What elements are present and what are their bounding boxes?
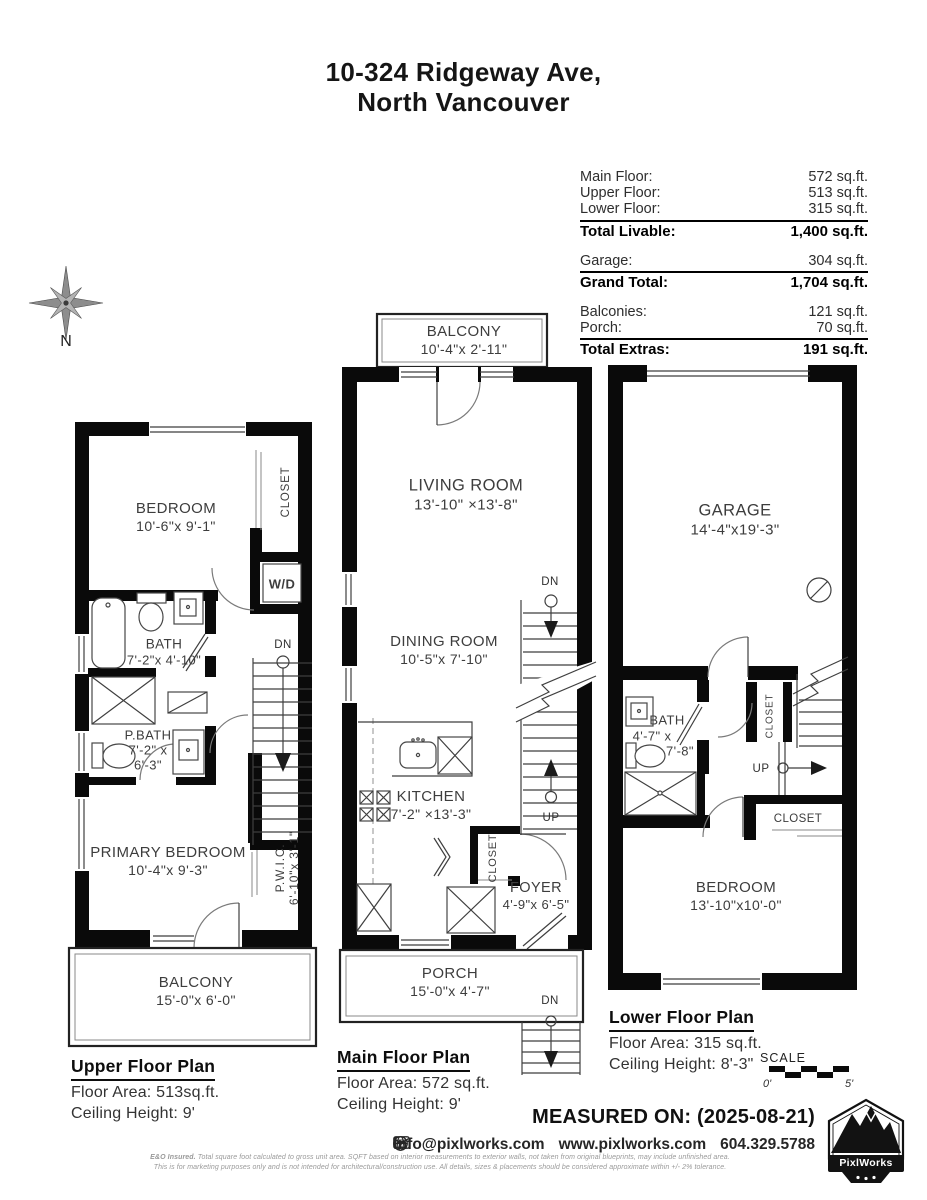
upper-plan-caption: Upper Floor Plan Floor Area: 513sq.ft. C… [71,1056,219,1123]
upper-plan-name: Upper Floor Plan [71,1056,215,1081]
email-text: info@pixlworks.com [393,1136,544,1154]
upper-balcony-label: BALCONY 15'-0"x 6'-0" [156,974,236,1008]
lower-closet-top-label: CLOSET [765,694,776,739]
garage-label: GARAGE 14'-4"x19'-3" [690,502,779,539]
address-line1: 10-324 Ridgeway Ave, [0,57,927,87]
table-row-grand-total: Grand Total:1,704 sq.ft. [580,271,868,291]
living-room-label: LIVING ROOM 13'-10" ×13'-8" [409,477,523,514]
table-row-total-livable: Total Livable:1,400 sq.ft. [580,220,868,240]
scale-bar [769,1066,849,1078]
website-text: www.pixlworks.com [559,1136,707,1154]
upper-pbath-label: P.BATH 7'-2" x 6'-3" [125,728,172,773]
measured-on-label: MEASURED ON: (2025-08-21) [532,1106,815,1129]
lower-plan-caption: Lower Floor Plan Floor Area: 315 sq.ft. … [609,1007,762,1074]
scale-label: SCALE [760,1051,806,1065]
disclaimer-line2: This is for marketing purposes only and … [55,1164,825,1171]
main-plan-caption: Main Floor Plan Floor Area: 572 sq.ft. C… [337,1047,490,1114]
main-plan-ceiling-height: Ceiling Height: 9' [337,1096,490,1114]
kitchen-label: KITCHEN 7'-2" ×13'-3" [391,788,472,822]
primary-bedroom-label: PRIMARY BEDROOM 10'-4"x 9'-3" [90,844,245,878]
main-up-label: UP [543,812,560,824]
area-summary-table: Main Floor:572 sq.ft. Upper Floor:513 sq… [580,169,868,358]
disclaimer-line1: E&O Insured. Total square foot calculate… [55,1154,825,1161]
scale-five: 5' [845,1078,853,1090]
lower-up-label: UP [753,763,770,775]
lower-plan-ceiling-height: Ceiling Height: 8'-3" [609,1056,762,1074]
logo-wordmark: PixlWorks [839,1157,892,1169]
main-plan-floor-area: Floor Area: 572 sq.ft. [337,1075,490,1093]
compass-rose-icon [29,266,103,340]
pwic-label: P.W.I.C. 6'-10"x 3'-1" [273,831,301,905]
upper-bedroom-label: BEDROOM 10'-6"x 9'-1" [136,500,216,534]
table-row: Porch:70 sq.ft. [580,320,868,336]
upper-plan-floor-area: Floor Area: 513sq.ft. [71,1084,219,1102]
pixlworks-logo-icon [828,1100,904,1183]
lower-bath-label: BATH [649,713,684,728]
website-group: www.pixlworks.com [559,1136,707,1154]
page-title: 10-324 Ridgeway Ave, North Vancouver [0,57,927,117]
upper-closet-label: CLOSET [280,467,292,518]
porch-label: PORCH 15'-0"x 4'-7" [410,965,490,999]
lower-bedroom-label: BEDROOM 13'-10"x10'-0" [690,879,782,913]
main-closet-label: CLOSET [487,834,499,883]
main-dn-label: DN [541,576,559,588]
table-row: Garage:304 sq.ft. [580,253,868,269]
address-line2: North Vancouver [0,87,927,117]
foyer-label: FOYER 4'-9"x 6'-5" [503,880,570,912]
upper-plan-ceiling-height: Ceiling Height: 9' [71,1105,219,1123]
lower-plan-name: Lower Floor Plan [609,1007,754,1032]
table-row: Balconies:121 sq.ft. [580,304,868,320]
phone-icon [393,1136,408,1151]
phone-group: 604.329.5788 [720,1136,815,1154]
porch-dn-label: DN [541,995,559,1007]
dining-room-label: DINING ROOM 10'-5"x 7'-10" [390,633,498,667]
lower-bath-dims1: 4'-7" x [633,729,672,744]
table-row-total-extras: Total Extras:191 sq.ft. [580,338,868,358]
upper-dn-label: DN [274,639,292,651]
upper-bath-label: BATH 7'-2"x 4'-10" [127,637,201,668]
table-row: Lower Floor:315 sq.ft. [580,201,868,217]
lower-closet-mid-label: CLOSET [774,813,822,825]
washer-dryer-label: W/D [269,577,295,592]
contact-row: info@pixlworks.com www.pixlworks.com 604… [393,1136,815,1154]
compass-north-label: N [60,333,72,351]
phone-text: 604.329.5788 [720,1136,815,1154]
scale-zero: 0' [763,1078,771,1090]
main-floor-plan-kitchen [357,718,512,933]
lower-plan-floor-area: Floor Area: 315 sq.ft. [609,1035,762,1053]
email-group: info@pixlworks.com [393,1136,544,1154]
lower-bath-dims2: 7'-8" [666,744,694,759]
main-plan-name: Main Floor Plan [337,1047,470,1072]
table-row: Main Floor:572 sq.ft. [580,169,868,185]
main-balcony-label: BALCONY 10'-4"x 2'-11" [421,323,508,357]
table-row: Upper Floor:513 sq.ft. [580,185,868,201]
